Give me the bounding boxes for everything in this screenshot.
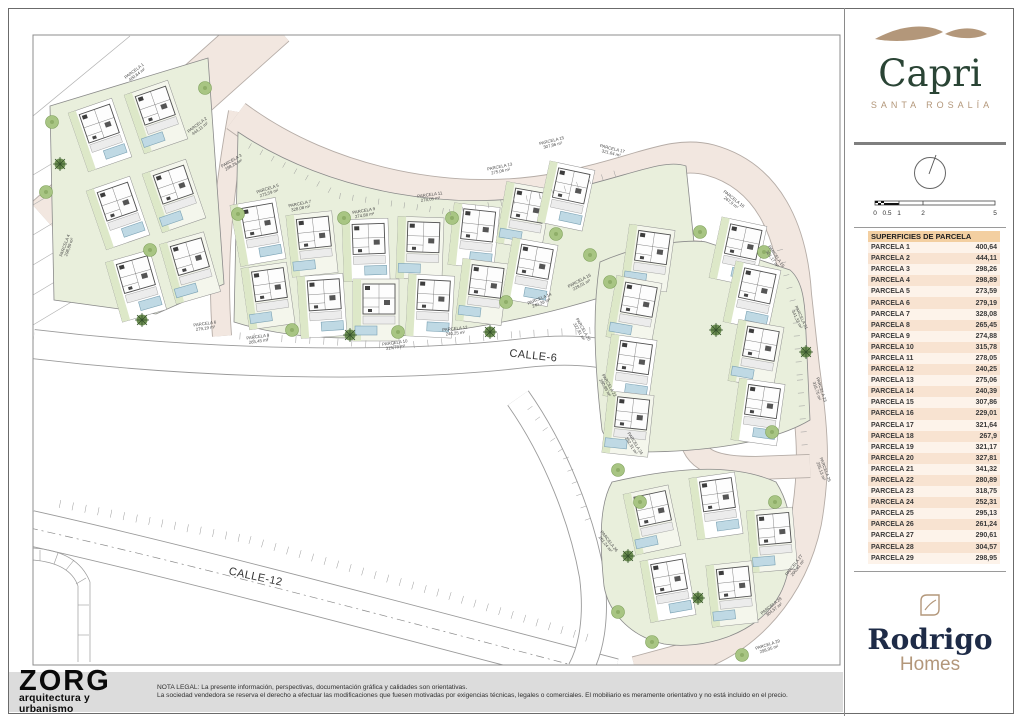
table-row: PARCELA 19321,17 [868,442,1000,453]
table-row: PARCELA 24252,31 [868,497,1000,508]
developer-sub: Homes [846,654,1014,676]
project-subtitle: SANTA ROSALÍA [846,100,1014,110]
table-row: PARCELA 6279,19 [868,297,1000,308]
table-row: PARCELA 11278,05 [868,353,1000,364]
table-row: PARCELA 22280,89 [868,475,1000,486]
leaf-icon [917,593,943,617]
table-row: PARCELA 16229,01 [868,408,1000,419]
table-row: PARCELA 17321,64 [868,420,1000,431]
table-row: PARCELA 13275,06 [868,375,1000,386]
table-row: PARCELA 9274,88 [868,331,1000,342]
table-row: PARCELA 20327,81 [868,453,1000,464]
project-name: Capri [846,55,1014,94]
parcel-areas-table: SUPERFICIES DE PARCELA PARCELA 1400,64PA… [868,231,1000,564]
scale-label: 0 [873,210,877,217]
table-row: PARCELA 15307,86 [868,397,1000,408]
sidebar-rule-thin-top [854,227,1006,228]
capri-logo: Capri SANTA ROSALÍA [846,18,1014,110]
table-row: PARCELA 1400,64 [868,242,1000,253]
table-row: PARCELA 28304,57 [868,542,1000,553]
table-row: PARCELA 5273,59 [868,286,1000,297]
scale-label: 1 [897,210,901,217]
architect-tagline: arquitectura y urbanismo [19,693,147,715]
table-row: PARCELA 27290,61 [868,530,1000,541]
table-row: PARCELA 7328,08 [868,309,1000,320]
table-row: PARCELA 8265,45 [868,320,1000,331]
table-row: PARCELA 10315,78 [868,342,1000,353]
legal-line-2: La sociedad vendedora se reserva el dere… [157,692,788,700]
table-row: PARCELA 3298,26 [868,264,1000,275]
table-row: PARCELA 2444,11 [868,253,1000,264]
rodrigo-homes-logo: Rodrigo Homes [846,593,1014,676]
table-row: PARCELA 25295,13 [868,508,1000,519]
table-title: SUPERFICIES DE PARCELA [868,231,1000,242]
developer-name: Rodrigo [846,626,1014,654]
scale-label: 0.5 [882,210,891,217]
scale-label: 2 [921,210,925,217]
table-row: PARCELA 18267,9 [868,431,1000,442]
sidebar-rule-thick [854,142,1006,145]
sidebar-divider [844,8,845,716]
footer-strip: ZORG arquitectura y urbanismo NOTA LEGAL… [9,672,843,712]
capri-waves-icon [865,18,995,48]
masterplan-sheet: PARCELA 1400,64 m²PARCELA 2444,11 m²PARC… [0,0,1024,724]
scale-label: 5 [993,210,997,217]
sidebar: Capri SANTA ROSALÍA 00.5125 SUPERFICIES … [846,8,1014,716]
table-row: PARCELA 12240,25 [868,364,1000,375]
table-row: PARCELA 4298,89 [868,275,1000,286]
table-row: PARCELA 29298,95 [868,553,1000,564]
table-row: PARCELA 26261,24 [868,519,1000,530]
legal-line-1: NOTA LEGAL: La presente información, per… [157,684,788,692]
table-row: PARCELA 23318,75 [868,486,1000,497]
scale-bar: 00.5125 [855,194,1005,222]
architect-name: ZORG [19,669,147,694]
north-compass-icon [910,150,950,192]
zorg-logo: ZORG arquitectura y urbanismo [19,669,147,716]
table-row: PARCELA 14240,39 [868,386,1000,397]
table-row: PARCELA 21341,32 [868,464,1000,475]
sidebar-rule-thin-bottom [854,571,1006,572]
legal-note: NOTA LEGAL: La presente información, per… [157,684,788,700]
